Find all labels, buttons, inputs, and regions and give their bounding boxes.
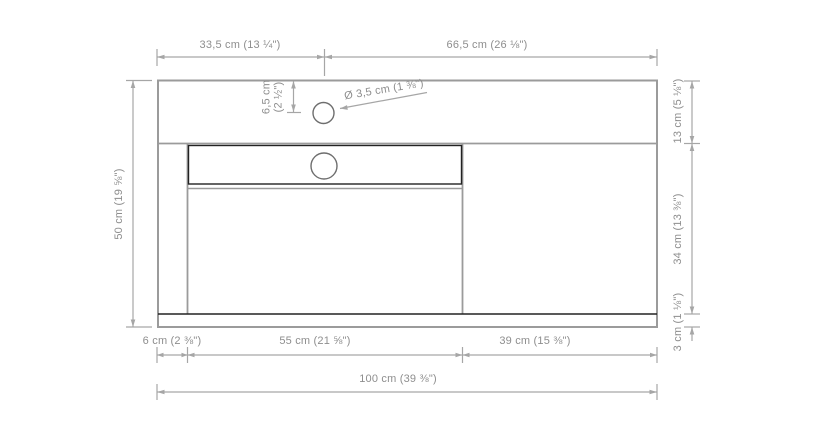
dimension-lines [126, 49, 700, 400]
dimension-arrowheads [131, 55, 695, 395]
dim-label-right-middle: 34 cm (13 ⅜") [672, 193, 684, 264]
dim-label-top-left-width: 33,5 cm (13 ¼") [200, 39, 281, 51]
dim-label-bottom-middle: 55 cm (21 ⅝") [279, 335, 350, 347]
dark-edges [158, 146, 657, 315]
countertop-outline [158, 81, 657, 328]
dim-label-bottom-left: 6 cm (2 ⅜") [143, 335, 202, 347]
dim-label-bottom-right: 39 cm (15 ⅜") [499, 335, 570, 347]
dim-label-right-top: 13 cm (5 ⅛") [672, 79, 684, 144]
countertop-outer-rect [158, 81, 657, 328]
dim-label-hole-offset-inch: (2 ½") [273, 80, 285, 114]
dim-label-hole-offset-cm: 6,5 cm [261, 80, 273, 114]
dim-label-right-bottom: 3 cm (1 ⅛") [672, 293, 684, 352]
dim-label-hole-offset: 6,5 cm (2 ½") [261, 80, 286, 114]
dim-label-left-depth: 50 cm (19 ⅝") [113, 168, 125, 239]
holes [311, 103, 337, 180]
technical-drawing-canvas: 33,5 cm (13 ¼") 66,5 cm (26 ⅛") 50 cm (1… [0, 0, 829, 433]
overflow-slot-rect [189, 146, 462, 185]
dim-label-top-right-width: 66,5 cm (26 ⅛") [447, 39, 528, 51]
drain-hole-circle [311, 153, 337, 179]
dim-label-bottom-total: 100 cm (39 ⅜") [359, 373, 437, 385]
faucet-hole-circle [313, 103, 334, 124]
